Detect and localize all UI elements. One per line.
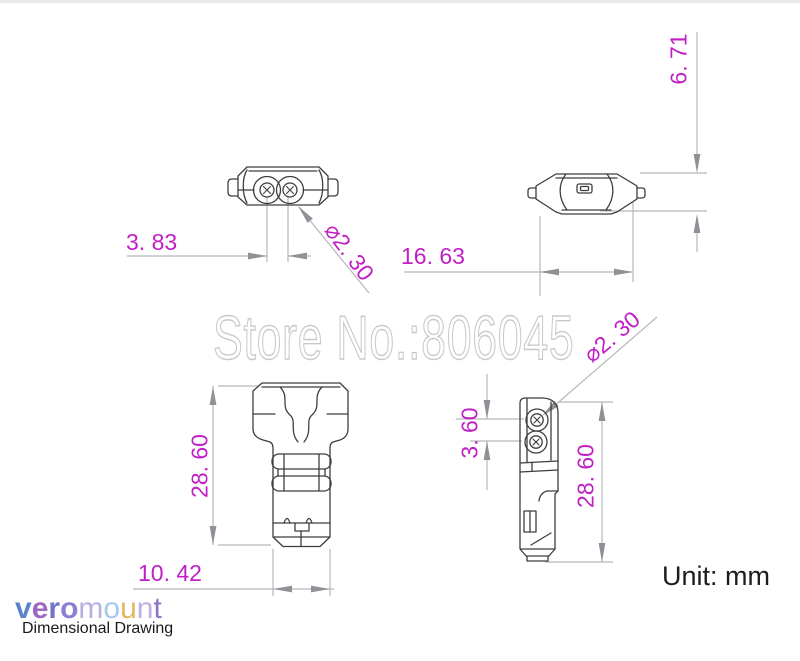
dim-label-top-width: 16. 63 (401, 245, 465, 268)
dim-label-top-height: 6. 71 (668, 33, 691, 84)
front-elevation-drawing (253, 383, 348, 547)
unit-label: Unit: mm (662, 561, 770, 592)
dim-label-front-height: 28. 60 (189, 434, 212, 498)
dim-label-side-hole-spacing: 3. 60 (459, 407, 482, 458)
top-view-drawing (528, 174, 645, 214)
dim-label-side-height: 28. 60 (575, 444, 598, 508)
brand-subtitle: Dimensional Drawing (22, 620, 173, 638)
dim-label-front-width: 10. 42 (138, 562, 202, 585)
dimension-arrows (210, 154, 701, 592)
dim-label-front-pin-spacing: 3. 83 (126, 231, 177, 254)
side-elevation-drawing (520, 398, 558, 561)
dimensional-drawing-page: { "watermark": "Store No.:806045", "unit… (0, 0, 800, 661)
front-view-drawing (228, 167, 338, 205)
